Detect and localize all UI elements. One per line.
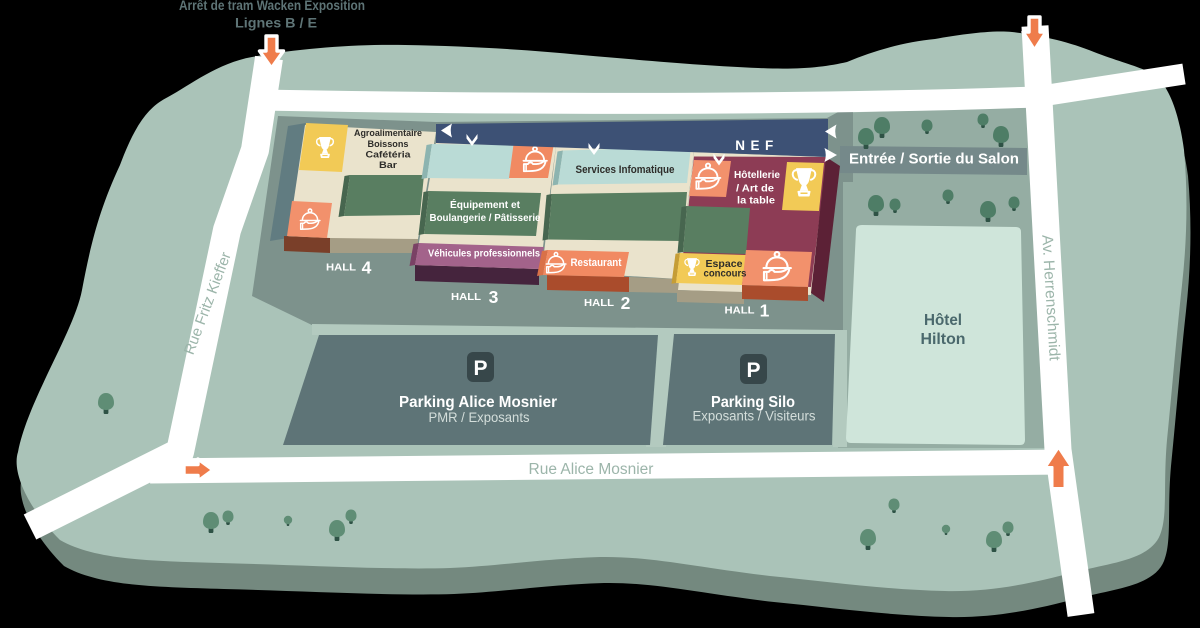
svg-text:1: 1 [760, 301, 770, 321]
svg-text:Hôtel: Hôtel [924, 312, 962, 329]
svg-text:4: 4 [362, 258, 372, 278]
svg-text:P: P [473, 357, 487, 380]
svg-text:Équipement et: Équipement et [450, 198, 520, 211]
svg-text:Agroalimentaire: Agroalimentaire [354, 128, 422, 139]
svg-text:concours: concours [704, 268, 747, 280]
svg-text:Lignes B / E: Lignes B / E [235, 15, 317, 31]
svg-text:Restaurant: Restaurant [571, 257, 622, 269]
svg-text:Arrêt de tram Wacken Expositio: Arrêt de tram Wacken Exposition [179, 0, 365, 13]
svg-text:Boissons: Boissons [368, 139, 409, 150]
svg-text:/ Art de: / Art de [736, 183, 774, 195]
svg-text:Hôtellerie: Hôtellerie [734, 169, 780, 181]
svg-text:Bar: Bar [379, 160, 397, 171]
svg-text:Entrée / Sortie du Salon: Entrée / Sortie du Salon [849, 152, 1019, 168]
svg-text:Véhicules professionnels: Véhicules professionnels [428, 248, 540, 260]
svg-text:HALL: HALL [326, 262, 357, 274]
svg-text:HALL: HALL [725, 305, 756, 317]
svg-text:NEF: NEF [735, 138, 779, 153]
svg-text:HALL: HALL [451, 291, 482, 303]
svg-text:Exposants / Visiteurs: Exposants / Visiteurs [693, 408, 816, 424]
svg-text:Cafétéria: Cafétéria [366, 150, 412, 161]
svg-text:P: P [746, 359, 760, 382]
svg-text:PMR / Exposants: PMR / Exposants [429, 409, 530, 425]
svg-text:2: 2 [621, 293, 631, 313]
svg-text:Boulangerie / Pâtisserie: Boulangerie / Pâtisserie [430, 212, 541, 224]
svg-text:Rue Alice Mosnier: Rue Alice Mosnier [529, 461, 654, 478]
svg-text:Hilton: Hilton [921, 331, 966, 348]
svg-text:HALL: HALL [584, 297, 615, 309]
svg-text:la table: la table [737, 195, 775, 207]
svg-text:3: 3 [489, 287, 499, 307]
svg-text:Services Infomatique: Services Infomatique [576, 164, 675, 176]
